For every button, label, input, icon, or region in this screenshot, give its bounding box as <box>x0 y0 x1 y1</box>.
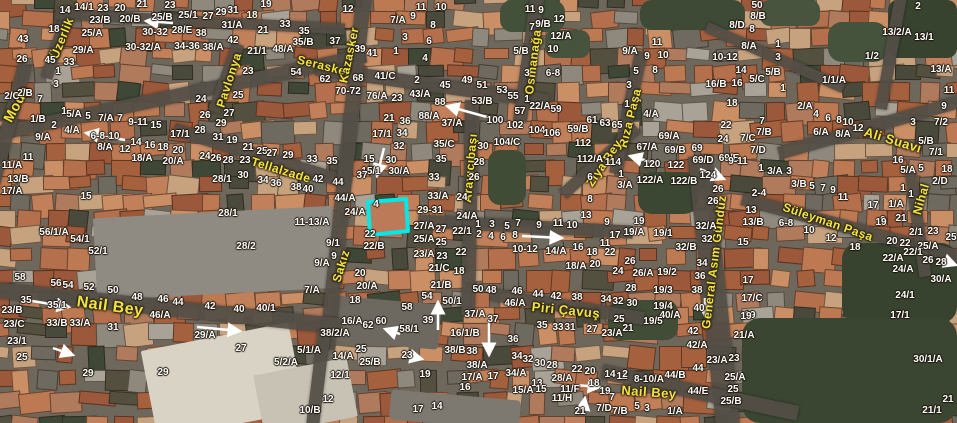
parcel-number-label[interactable]: 20 <box>584 367 595 377</box>
parcel-number-label[interactable]: 37 <box>329 37 340 47</box>
parcel-number-label[interactable]: 10 <box>657 51 668 61</box>
parcel-number-label[interactable]: 18/A <box>565 262 586 272</box>
parcel-number-label[interactable]: 4 <box>422 54 428 64</box>
parcel-number-label[interactable]: 23 <box>97 4 108 14</box>
parcel-number-label[interactable]: 26 <box>210 154 221 164</box>
parcel-number-label[interactable]: 16 <box>572 243 583 253</box>
parcel-number-label[interactable]: 7 <box>37 95 43 105</box>
parcel-number-label[interactable]: 32/B <box>675 243 696 253</box>
parcel-number-label[interactable]: 29-31 <box>417 206 443 216</box>
parcel-number-label[interactable]: 25/A <box>81 29 102 39</box>
parcel-number-label[interactable]: 5 <box>918 164 924 174</box>
parcel-number-label[interactable]: 22/A <box>529 102 550 112</box>
parcel-number-label[interactable]: 35/B <box>292 38 313 48</box>
parcel-number-label[interactable]: 88 <box>434 98 445 108</box>
parcel-number-label[interactable]: 17 <box>867 201 878 211</box>
parcel-number-label[interactable]: 52/1 <box>88 247 107 257</box>
parcel-number-label[interactable]: 19/5 <box>643 317 662 327</box>
parcel-number-label[interactable]: 19 <box>740 312 751 322</box>
parcel-number-label[interactable]: 17/1 <box>170 130 189 140</box>
parcel-number-label[interactable]: 23/1 <box>7 337 26 347</box>
parcel-number-label[interactable]: 26 <box>712 185 723 195</box>
parcel-number-label[interactable]: 8/D <box>729 21 745 31</box>
parcel-number-label[interactable]: 12 <box>322 395 333 405</box>
parcel-number-label[interactable]: 24 <box>195 95 206 105</box>
parcel-number-label[interactable]: 21 <box>242 143 253 153</box>
parcel-number-label[interactable]: 6 <box>500 233 506 243</box>
parcel-number-label[interactable]: 23 <box>239 156 250 166</box>
parcel-number-label[interactable]: 25/B <box>359 358 380 368</box>
parcel-number-label[interactable]: 22 <box>455 248 466 258</box>
parcel-number-label[interactable]: 1 <box>780 84 786 94</box>
parcel-number-label[interactable]: 38 <box>571 293 582 303</box>
parcel-number-label[interactable]: 2/B <box>17 89 33 99</box>
parcel-number-label[interactable]: 76/A <box>366 92 387 102</box>
parcel-number-label[interactable]: 21/1 <box>247 47 266 57</box>
parcel-number-label[interactable]: 28 <box>473 158 484 168</box>
parcel-number-label[interactable]: 6 <box>426 37 432 47</box>
parcel-number-label[interactable]: 8/B <box>750 12 766 22</box>
parcel-number-label[interactable]: 56/1/A <box>39 228 68 238</box>
parcel-number-label[interactable]: 61 <box>586 116 597 126</box>
parcel-number-label[interactable]: 7 <box>117 114 123 124</box>
parcel-number-label[interactable]: 27 <box>435 225 446 235</box>
parcel-number-label[interactable]: 38/B <box>444 346 465 356</box>
parcel-number-label[interactable]: 31/A <box>221 21 242 31</box>
parcel-number-label[interactable]: 5/B <box>918 137 934 147</box>
parcel-number-label[interactable]: 48 <box>131 293 142 303</box>
parcel-number-label[interactable]: 29 <box>82 369 93 379</box>
parcel-number-label[interactable]: 39 <box>354 45 365 55</box>
parcel-number-label[interactable]: 42/A <box>686 341 707 351</box>
parcel-number-label[interactable]: 24 <box>717 135 728 145</box>
parcel-number-label[interactable]: 44/E <box>688 387 709 397</box>
parcel-number-label[interactable]: 4/A <box>643 110 659 120</box>
parcel-number-label[interactable]: 19 <box>875 218 886 228</box>
parcel-number-label[interactable]: 28 <box>222 156 233 166</box>
parcel-number-label[interactable]: 106 <box>544 129 561 139</box>
parcel-number-label[interactable]: 23 <box>391 94 402 104</box>
parcel-number-label[interactable]: 1/A <box>667 407 683 417</box>
parcel-number-label[interactable]: 30-32 <box>142 28 168 38</box>
parcel-number-label[interactable]: 12/1 <box>330 371 349 381</box>
parcel-number-label[interactable]: 104/C <box>494 138 521 148</box>
parcel-number-label[interactable]: 31 <box>564 323 575 333</box>
parcel-number-label[interactable]: 44 <box>532 290 543 300</box>
parcel-number-label[interactable]: 25 <box>232 91 243 101</box>
parcel-number-label[interactable]: 11 <box>553 219 564 229</box>
parcel-number-label[interactable]: 1 <box>618 170 624 180</box>
parcel-number-label[interactable]: 28 <box>194 126 205 136</box>
map-viewport[interactable]: 1414/1232021231923/B20/B25/B25/127293118… <box>0 0 957 423</box>
parcel-number-label[interactable]: 9-11 <box>128 118 147 128</box>
parcel-number-label[interactable]: 20/A <box>356 282 377 292</box>
parcel-number-label[interactable]: 67/A <box>636 143 657 153</box>
parcel-number-label[interactable]: 4 <box>813 110 819 120</box>
parcel-number-label[interactable]: 7 <box>515 219 521 229</box>
parcel-number-label[interactable]: 27 <box>235 344 246 354</box>
parcel-number-label[interactable]: 44/B <box>664 371 685 381</box>
parcel-number-label[interactable]: 68 <box>352 74 363 84</box>
parcel-number-label[interactable]: 30 <box>477 142 488 152</box>
parcel-number-label[interactable]: 18 <box>586 248 597 258</box>
parcel-number-label[interactable]: 3/A <box>767 167 783 177</box>
parcel-number-label[interactable]: 44 <box>692 364 703 374</box>
parcel-number-label[interactable]: 59 <box>550 105 561 115</box>
parcel-number-label[interactable]: 124 <box>700 171 717 181</box>
parcel-number-label[interactable]: 4 <box>373 200 379 210</box>
parcel-number-label[interactable]: 28/A <box>551 374 572 384</box>
parcel-number-label[interactable]: 30 <box>534 359 545 369</box>
parcel-number-label[interactable]: 112 <box>575 139 591 149</box>
parcel-number-label[interactable]: 35/C <box>433 140 454 150</box>
parcel-number-label[interactable]: 30 <box>237 171 248 181</box>
parcel-number-label[interactable]: 18 <box>453 267 464 277</box>
parcel-number-label[interactable]: 16/1/B <box>450 329 479 339</box>
parcel-number-label[interactable]: 3 <box>524 69 530 79</box>
parcel-number-label[interactable]: 20/B <box>119 15 140 25</box>
parcel-number-label[interactable]: 32 <box>612 297 623 307</box>
parcel-number-label[interactable]: 9/A <box>35 133 51 143</box>
parcel-number-label[interactable]: 29 <box>157 368 168 378</box>
parcel-number-label[interactable]: 15/A <box>512 386 533 396</box>
parcel-number-label[interactable]: 11 <box>838 193 849 203</box>
parcel-number-label[interactable]: 13 <box>580 211 591 221</box>
parcel-number-label[interactable]: 14 <box>59 6 70 16</box>
parcel-number-label[interactable]: 21 <box>574 407 585 417</box>
parcel-number-label[interactable]: 26/A <box>632 269 653 279</box>
parcel-number-label[interactable]: 17/A <box>1 187 22 197</box>
parcel-number-label[interactable]: 42 <box>312 175 323 185</box>
parcel-number-label[interactable]: 5 <box>809 182 815 192</box>
parcel-number-label[interactable]: 46/A <box>504 299 525 309</box>
parcel-number-label[interactable]: 21 <box>942 395 953 405</box>
parcel-number-label[interactable]: 33 <box>63 58 74 68</box>
parcel-number-label[interactable]: 35 <box>298 27 309 37</box>
parcel-number-label[interactable]: 17/1 <box>372 130 391 140</box>
parcel-number-label[interactable]: 58 <box>14 273 25 283</box>
parcel-number-label[interactable]: 18 <box>349 296 360 306</box>
parcel-number-label[interactable]: 44 <box>172 298 183 308</box>
parcel-number-label[interactable]: 11/A <box>2 161 23 171</box>
parcel-number-label[interactable]: 33/A <box>427 192 448 202</box>
parcel-number-label[interactable]: 7/D <box>750 146 766 156</box>
parcel-number-label[interactable]: 10/B <box>299 406 320 416</box>
parcel-number-label[interactable]: 19/1 <box>653 229 672 239</box>
parcel-number-label[interactable]: 36 <box>270 179 281 189</box>
parcel-number-label[interactable]: 37/A <box>464 310 485 320</box>
parcel-number-label[interactable]: 1/B <box>30 115 46 125</box>
parcel-number-label[interactable]: 28/1 <box>212 175 231 185</box>
parcel-number-label[interactable]: 25/1 <box>178 11 197 21</box>
parcel-number-label[interactable]: 26 <box>468 173 479 183</box>
parcel-number-label[interactable]: 2 <box>622 370 628 380</box>
parcel-number-label[interactable]: 2/A <box>797 102 813 112</box>
parcel-number-label[interactable]: 2 <box>476 230 482 240</box>
parcel-number-label[interactable]: 2-4 <box>752 189 766 199</box>
parcel-number-label[interactable]: 112/A <box>577 155 603 165</box>
parcel-number-label[interactable]: 27 <box>202 12 213 22</box>
parcel-number-label[interactable]: 34 <box>600 295 611 305</box>
parcel-number-label[interactable]: 16 <box>144 141 155 151</box>
parcel-number-label[interactable]: 55 <box>507 92 518 102</box>
parcel-number-label[interactable]: 7/A <box>304 286 320 296</box>
parcel-number-label[interactable]: 5/C <box>749 75 765 85</box>
parcel-number-label[interactable]: 23 <box>927 227 938 237</box>
parcel-number-label[interactable]: 8 <box>430 21 436 31</box>
parcel-number-label[interactable]: 54 <box>62 281 73 291</box>
parcel-number-label[interactable]: 2 <box>915 2 921 12</box>
parcel-number-label[interactable]: 40 <box>233 305 244 315</box>
parcel-number-label[interactable]: 23/B <box>1 306 22 316</box>
parcel-number-label[interactable]: 5 <box>633 67 639 77</box>
parcel-number-label[interactable]: 69/D <box>692 156 713 166</box>
parcel-number-label[interactable]: 31 <box>212 133 223 143</box>
parcel-number-label[interactable]: 9/1 <box>326 239 340 249</box>
parcel-number-label[interactable]: 15 <box>535 385 546 395</box>
parcel-number-label[interactable]: 12 <box>553 15 564 25</box>
parcel-number-label[interactable]: 10 <box>435 3 446 13</box>
parcel-number-label[interactable]: 50 <box>107 286 118 296</box>
parcel-number-label[interactable]: 11/H <box>552 394 573 404</box>
parcel-number-label[interactable]: 21 <box>257 26 268 36</box>
parcel-number-label[interactable]: 30/1/A <box>913 355 942 365</box>
parcel-number-label[interactable]: 18 <box>726 99 737 109</box>
parcel-number-label[interactable]: 10-12 <box>512 245 538 255</box>
parcel-number-label[interactable]: 14 <box>130 138 141 148</box>
parcel-number-label[interactable]: 18 <box>48 25 59 35</box>
parcel-number-label[interactable]: 30/A <box>388 167 409 177</box>
parcel-number-label[interactable]: 114 <box>605 158 621 168</box>
parcel-number-label[interactable]: 6-8 <box>779 219 793 229</box>
parcel-number-label[interactable]: 21/A <box>733 331 754 341</box>
parcel-number-label[interactable]: 22 <box>720 121 731 131</box>
parcel-number-label[interactable]: 32 <box>522 355 533 365</box>
parcel-number-label[interactable]: 62 <box>362 321 373 331</box>
parcel-number-label[interactable]: 21 <box>622 324 633 334</box>
parcel-number-label[interactable]: 40 <box>693 304 704 314</box>
parcel-number-label[interactable]: 1/2 <box>865 52 879 62</box>
parcel-number-label[interactable]: 18 <box>588 379 599 389</box>
parcel-number-label[interactable]: 4/A <box>64 126 80 136</box>
parcel-number-label[interactable]: 6 <box>825 114 831 124</box>
parcel-number-label[interactable]: 9 <box>538 6 544 16</box>
parcel-number-label[interactable]: 30-32/A <box>125 43 161 53</box>
parcel-number-label[interactable]: 44 <box>332 178 343 188</box>
parcel-number-label[interactable]: 23/C <box>3 320 24 330</box>
parcel-number-label[interactable]: 35/1 <box>47 301 66 311</box>
parcel-number-label[interactable]: 38 <box>466 347 477 357</box>
parcel-number-label[interactable]: 15 <box>150 121 161 131</box>
parcel-number-label[interactable]: 26 <box>16 55 27 65</box>
parcel-number-label[interactable]: 21 <box>895 214 906 224</box>
parcel-number-label[interactable]: 29 <box>215 119 226 129</box>
parcel-number-label[interactable]: 120 <box>644 160 661 170</box>
parcel-number-label[interactable]: 19 <box>260 0 271 10</box>
parcel-number-label[interactable]: 13/1 <box>914 33 933 43</box>
parcel-number-label[interactable]: 10-12 <box>712 53 738 63</box>
parcel-number-label[interactable]: 29/A <box>72 46 93 56</box>
parcel-number-label[interactable]: 35 <box>435 155 446 165</box>
parcel-number-label[interactable]: 23 <box>436 252 447 262</box>
parcel-number-label[interactable]: 25 <box>355 345 366 355</box>
parcel-number-label[interactable]: 24 <box>456 193 467 203</box>
parcel-number-label[interactable]: 29 <box>215 8 226 18</box>
parcel-number-label[interactable]: 28/1 <box>218 209 237 219</box>
parcel-number-label[interactable]: 12 <box>342 5 353 15</box>
parcel-number-label[interactable]: 9 <box>536 221 542 231</box>
parcel-number-label[interactable]: 37 <box>487 315 498 325</box>
parcel-number-label[interactable]: 50 <box>472 285 483 295</box>
parcel-number-label[interactable]: 17 <box>412 405 423 415</box>
parcel-number-label[interactable]: 44/A <box>334 194 355 204</box>
parcel-number-label[interactable]: 14/1 <box>74 3 93 13</box>
parcel-number-label[interactable]: 70-72 <box>335 87 361 97</box>
parcel-number-label[interactable]: 25 <box>945 233 956 243</box>
parcel-number-label[interactable]: 18 <box>246 11 257 21</box>
parcel-number-label[interactable]: 7 <box>529 23 535 33</box>
parcel-number-label[interactable]: 5/2/A <box>274 358 298 368</box>
parcel-number-label[interactable]: 28 <box>625 284 636 294</box>
parcel-number-label[interactable]: 62 <box>319 75 330 85</box>
parcel-number-label[interactable]: 25/A <box>413 235 434 245</box>
parcel-number-label[interactable]: 48 <box>485 286 496 296</box>
parcel-number-label[interactable]: 9/A <box>622 47 638 57</box>
parcel-number-label[interactable]: 15 <box>363 155 374 165</box>
parcel-number-label[interactable]: 38/2/A <box>320 329 349 339</box>
parcel-number-label[interactable]: 24/1 <box>895 291 914 301</box>
parcel-number-label[interactable]: 23/A <box>413 250 434 260</box>
parcel-number-label[interactable]: 16/A <box>341 317 362 327</box>
parcel-number-label[interactable]: 20 <box>114 4 125 14</box>
parcel-number-label[interactable]: 7 <box>820 184 826 194</box>
parcel-number-label[interactable]: 39 <box>422 316 433 326</box>
parcel-number-label[interactable]: 13 <box>745 206 756 216</box>
parcel-number-label[interactable]: 4 <box>488 232 494 242</box>
parcel-number-label[interactable]: 7/B <box>612 407 628 417</box>
parcel-number-label[interactable]: 22/1 <box>903 248 922 258</box>
parcel-number-label[interactable]: 16/B <box>705 80 726 90</box>
parcel-number-label[interactable]: 5 <box>85 112 91 122</box>
parcel-number-label[interactable]: 7/2 <box>934 118 948 128</box>
parcel-number-label[interactable]: 1/A <box>888 200 904 210</box>
parcel-number-label[interactable]: 9 <box>331 252 337 262</box>
parcel-number-label[interactable]: 19 <box>226 136 237 146</box>
parcel-number-label[interactable]: 25/B <box>720 397 741 407</box>
parcel-number-label[interactable]: 3/A <box>617 181 633 191</box>
parcel-number-label[interactable]: 45 <box>439 81 450 91</box>
parcel-number-label[interactable]: 14 <box>604 370 615 380</box>
parcel-number-label[interactable]: 7/B <box>756 128 772 138</box>
parcel-number-label[interactable]: 10 <box>803 226 814 236</box>
parcel-number-label[interactable]: 19/3 <box>653 286 672 296</box>
parcel-number-label[interactable]: 38/A <box>466 361 487 371</box>
parcel-number-label[interactable]: 17/1 <box>890 311 909 321</box>
parcel-number-label[interactable]: 18 <box>941 165 952 175</box>
parcel-number-label[interactable]: 29/A <box>194 331 215 341</box>
parcel-number-label[interactable]: 6/A <box>813 128 829 138</box>
parcel-number-label[interactable]: 28/E <box>172 26 193 36</box>
parcel-number-label[interactable]: 20 <box>589 260 600 270</box>
parcel-number-label[interactable]: 42 <box>204 302 215 312</box>
parcel-number-label[interactable]: 7/D <box>596 404 612 414</box>
parcel-number-label[interactable]: 7/A <box>390 16 406 26</box>
parcel-number-label[interactable]: 7 <box>759 117 765 127</box>
parcel-number-label[interactable]: 38 <box>691 286 702 296</box>
parcel-number-label[interactable]: 122/B <box>671 177 698 187</box>
parcel-number-label[interactable]: 13/A <box>930 65 951 75</box>
parcel-number-label[interactable]: 28 <box>935 258 946 268</box>
parcel-number-label[interactable]: 43 <box>17 35 28 45</box>
parcel-number-label[interactable]: 13/2/A <box>882 28 911 38</box>
parcel-number-label[interactable]: 1 <box>624 100 630 110</box>
parcel-number-label[interactable]: 1/1/A <box>822 76 846 86</box>
parcel-number-label[interactable]: 23/A <box>706 356 727 366</box>
parcel-number-label[interactable]: 6-8-10 <box>91 132 120 142</box>
parcel-number-label[interactable]: 18 <box>157 143 168 153</box>
parcel-number-label[interactable]: 1 <box>393 47 399 57</box>
parcel-number-label[interactable]: 36 <box>399 117 410 127</box>
parcel-number-label[interactable]: 22 <box>364 230 375 240</box>
parcel-number-label[interactable]: 54/1 <box>70 235 89 245</box>
parcel-number-label[interactable]: 11 <box>23 153 34 163</box>
parcel-number-label[interactable]: 17 <box>609 231 620 241</box>
parcel-number-label[interactable]: 9 <box>644 52 650 62</box>
parcel-number-label[interactable]: 3 <box>402 33 408 43</box>
parcel-number-label[interactable]: 5/B <box>765 68 781 78</box>
parcel-number-label[interactable]: 9/B <box>535 20 551 30</box>
parcel-number-label[interactable]: 69/A <box>658 132 679 142</box>
parcel-number-label[interactable]: 5 <box>504 222 510 232</box>
parcel-number-label[interactable]: 69/B <box>664 146 685 156</box>
parcel-number-label[interactable]: 54 <box>421 292 432 302</box>
parcel-number-label[interactable]: 11 <box>944 86 955 96</box>
parcel-number-label[interactable]: 20 <box>886 237 897 247</box>
parcel-number-label[interactable]: 9 <box>410 12 416 22</box>
parcel-number-label[interactable]: 3 <box>644 404 650 414</box>
parcel-number-label[interactable]: 57 <box>514 107 525 117</box>
parcel-number-label[interactable]: 31 <box>107 323 118 333</box>
parcel-number-label[interactable]: 34-36 <box>174 42 200 52</box>
parcel-number-label[interactable]: 12 <box>119 145 130 155</box>
parcel-number-label[interactable]: 32 <box>393 142 404 152</box>
parcel-number-label[interactable]: 33 <box>552 323 563 333</box>
parcel-number-label[interactable]: 34/A <box>505 369 526 379</box>
parcel-number-label[interactable]: 20 <box>172 146 183 156</box>
parcel-number-label[interactable]: 3 <box>786 167 792 177</box>
parcel-number-label[interactable]: 16 <box>459 383 470 393</box>
parcel-number-label[interactable]: 52 <box>83 283 94 293</box>
parcel-number-label[interactable]: 14/A <box>545 247 566 257</box>
parcel-number-label[interactable]: 25/B <box>151 13 172 23</box>
parcel-number-label[interactable]: 34 <box>257 176 268 186</box>
parcel-number-label[interactable]: 122/A <box>637 176 664 186</box>
parcel-number-label[interactable]: 34 <box>511 352 522 362</box>
parcel-number-label[interactable]: 14 <box>735 66 746 76</box>
parcel-number-label[interactable]: 6-8 <box>546 69 560 79</box>
parcel-number-label[interactable]: 21 <box>136 0 147 10</box>
parcel-number-label[interactable]: 56 <box>50 279 61 289</box>
parcel-number-label[interactable]: 53 <box>496 86 507 96</box>
parcel-number-label[interactable]: 15 <box>80 192 91 202</box>
parcel-number-label[interactable]: 33/B <box>46 319 67 329</box>
parcel-number-label[interactable]: 2/D <box>932 177 948 187</box>
parcel-number-label[interactable]: 19 <box>419 370 430 380</box>
parcel-number-label[interactable]: 16 <box>731 79 742 89</box>
parcel-number-label[interactable]: 27 <box>586 325 597 335</box>
parcel-number-label[interactable]: 23 <box>728 354 739 364</box>
parcel-number-label[interactable]: 3 <box>626 81 632 91</box>
